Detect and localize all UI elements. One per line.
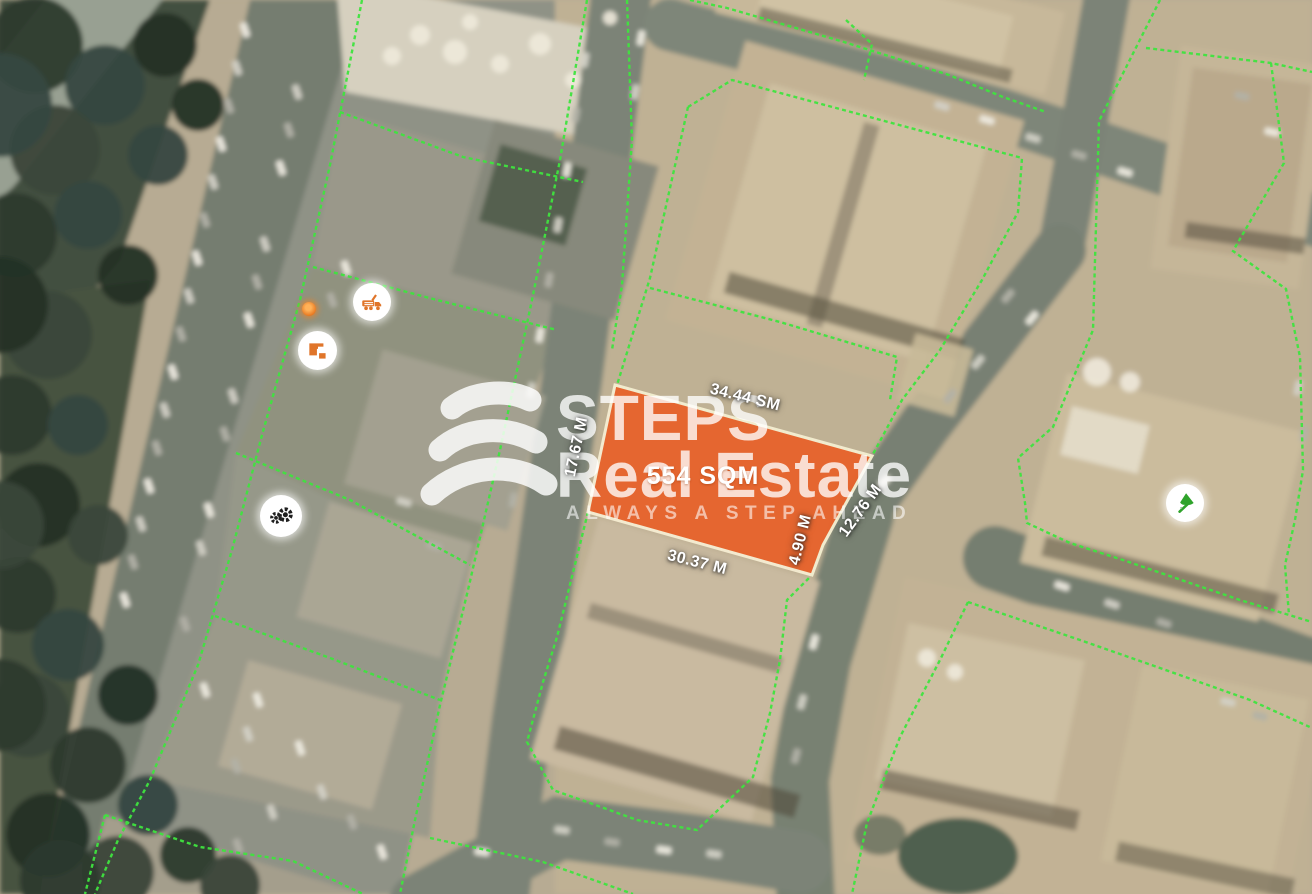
orange-dot-marker[interactable] [302,302,316,316]
gears-icon [266,501,296,531]
tree-icon [1172,490,1198,516]
construction-truck-marker[interactable] [353,283,391,321]
satellite-map[interactable]: STEPS Real Estate ALWAYS A STEP AHEAD 34… [0,0,1312,894]
plot-area-label: 554 SQM [638,462,768,491]
truck-icon [359,289,385,315]
building-marker[interactable] [298,331,337,370]
gears-marker[interactable] [260,495,302,537]
steps-logo-swoosh-icon [408,376,568,521]
building-icon [305,338,331,364]
tree-marker[interactable] [1166,484,1204,522]
